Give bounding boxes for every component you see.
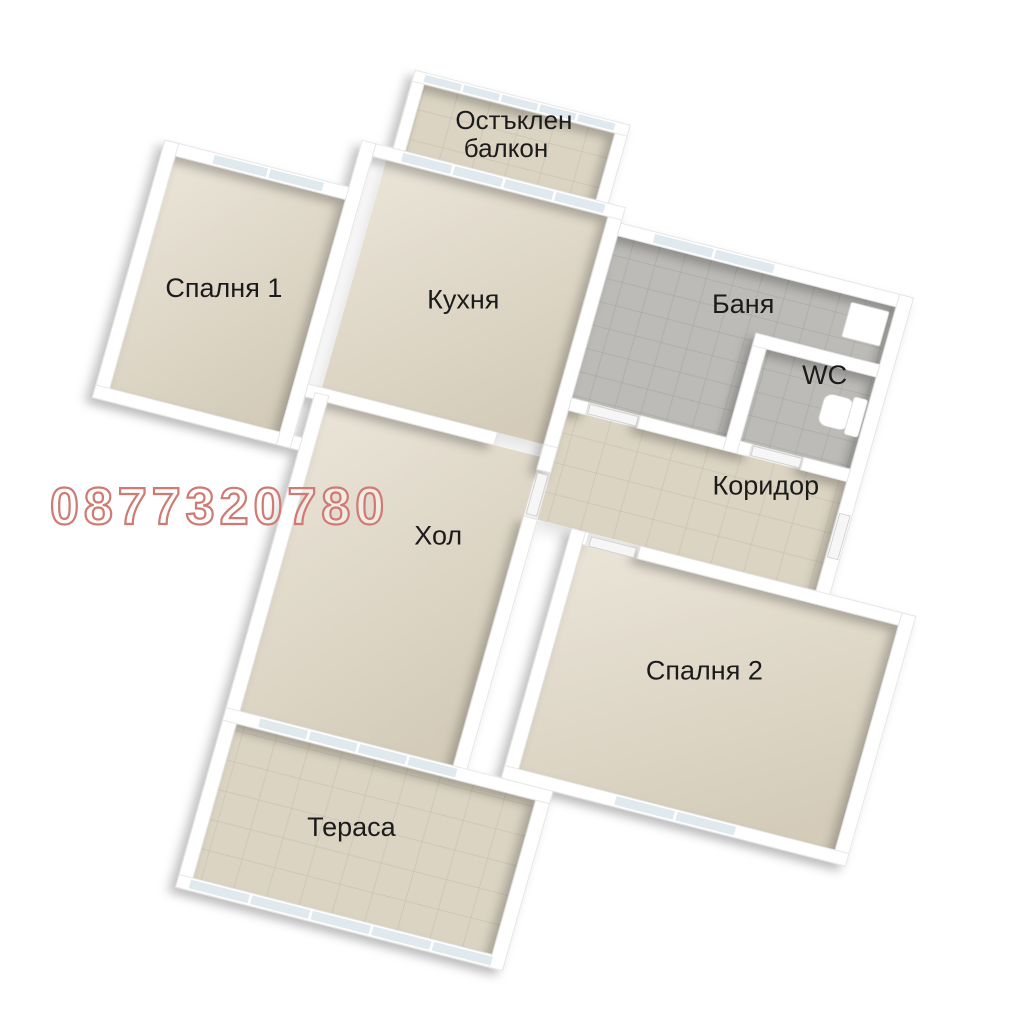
floor-plan-svg: 0877320780 Остъклен балкон Спалня 1 Кухн… (0, 0, 1024, 1024)
room-label-wc: WC (802, 360, 847, 390)
room-label-bedroom1: Спалня 1 (165, 273, 282, 303)
room-label-terrace: Тераса (307, 812, 397, 842)
floor-plan-image: 0877320780 Остъклен балкон Спалня 1 Кухн… (0, 0, 1024, 1024)
room-label-balcony-line1: Остъклен (455, 105, 572, 135)
room-label-bathroom: Баня (712, 289, 774, 319)
room-label-corridor: Коридор (712, 470, 819, 500)
room-label-kitchen: Кухня (427, 284, 499, 314)
room-label-living: Хол (414, 520, 462, 550)
room-label-balcony-line2: балкон (464, 133, 548, 163)
room-label-bedroom2: Спалня 2 (646, 655, 763, 685)
phone-watermark: 0877320780 (50, 478, 389, 536)
